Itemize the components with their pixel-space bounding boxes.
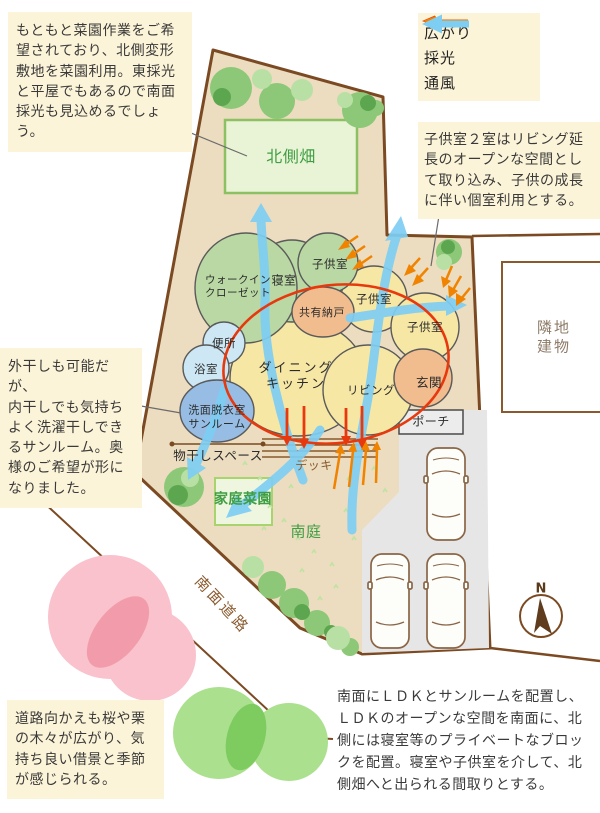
car <box>424 448 468 540</box>
wic-label: ウォークイン クローゼット <box>205 274 271 300</box>
sunroom-label: 洗面脱衣室 サンルーム <box>188 403 246 431</box>
legend: 広がり 採光 通風 <box>418 13 540 101</box>
south-garden-label: 南庭 <box>290 523 321 542</box>
note-garden-plan: もともと菜園作業をご希 望されており、北側変形 敷地を菜園利用。東採光 と平屋で… <box>8 12 192 152</box>
living-label: リビング <box>347 383 395 397</box>
bath-label: 浴室 <box>194 362 218 376</box>
north-compass <box>520 595 562 637</box>
shared-storage-label: 共有納戸 <box>299 306 345 320</box>
deck-label: デッキ <box>295 459 333 474</box>
legend-row-ventilation: 通風 <box>424 72 534 93</box>
note-sunroom: 外干しも可能だが、 内干しでも気持ち よく洗濯干しでき るサンルーム。奥 様のご… <box>0 348 142 508</box>
compass-north-label: N <box>536 582 547 597</box>
site-plan-diagram: もともと菜園作業をご希 望されており、北側変形 敷地を菜園利用。東採光 と平屋で… <box>0 0 600 813</box>
legend-row-daylight: 採光 <box>424 47 534 68</box>
note-borrowed-scenery: 道路向かえも桜や栗 の木々が広がり、気 持ち良い借景と季節 が感じられる。 <box>7 700 164 799</box>
note-kids-rooms: 子供室２室はリビング延 長のオープンな空間とし て取り込み、子供の成長 に伴い個… <box>418 122 600 219</box>
dining-kitchen-label: ダイニング キッチン <box>258 361 333 394</box>
toilet-label: 便所 <box>212 336 236 350</box>
neighbor-building-label: 隣地建物 <box>531 318 577 356</box>
neighbor-boundary-south <box>490 648 600 661</box>
kitchen-garden-label: 家庭菜園 <box>214 491 272 509</box>
car <box>424 554 468 648</box>
bedroom-label: 寝室 <box>271 274 296 289</box>
kids-east-label: 子供室 <box>356 292 392 306</box>
drying-space-label: 物干しスペース <box>173 448 263 464</box>
legend-label-daylight: 採光 <box>424 47 456 68</box>
car <box>368 554 412 648</box>
porch-label: ポーチ <box>412 415 450 430</box>
summary-text: 南面にＬＤＫとサンルームを配置し、 ＬＤＫのオープンな空間を南面に、北 側には寝… <box>337 686 600 797</box>
kids-southeast-label: 子供室 <box>407 320 443 334</box>
neighbor-boundary-north <box>472 234 600 236</box>
kids-north-label: 子供室 <box>312 257 348 271</box>
legend-label-ventilation: 通風 <box>424 72 456 93</box>
ventilation-arrow-icon <box>418 13 472 35</box>
entrance-label: 玄関 <box>416 375 442 391</box>
north-field-label: 北側畑 <box>266 147 316 167</box>
wind-arrowhead <box>385 216 408 241</box>
